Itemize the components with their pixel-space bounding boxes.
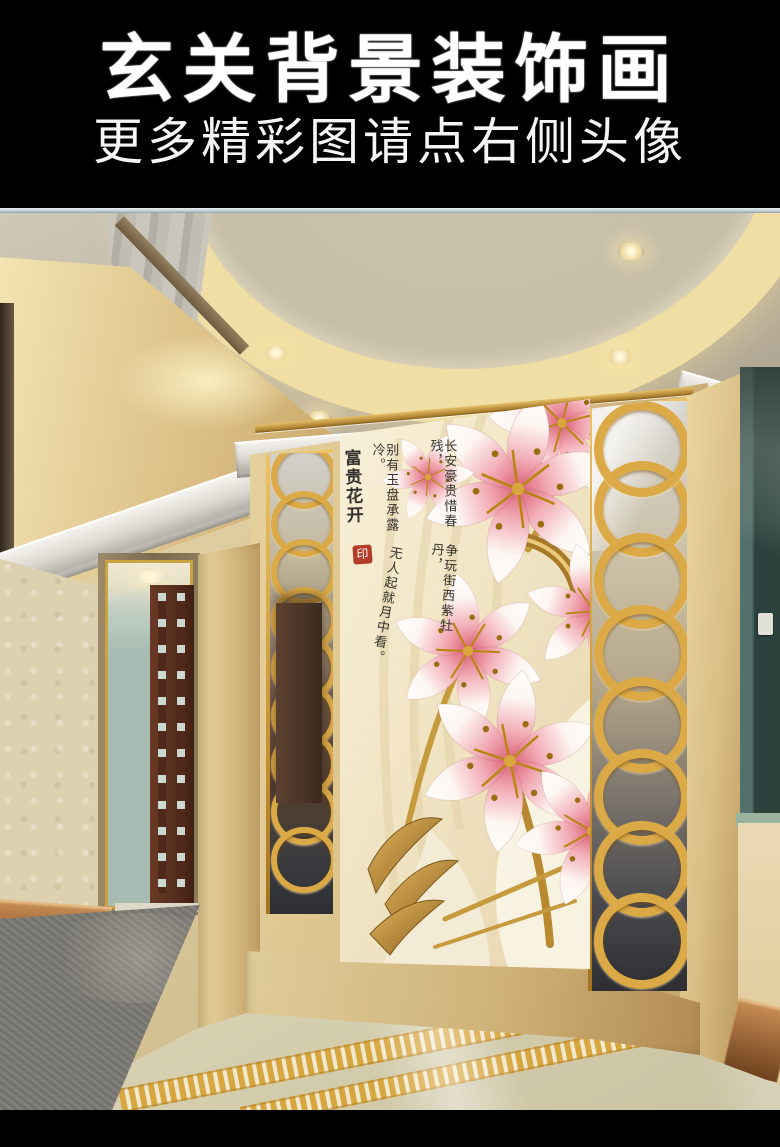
gold-ring: [594, 401, 690, 497]
left-edge-frame: [0, 303, 14, 575]
calligraphy-title: 富贵花开: [341, 449, 362, 536]
room-ceiling-light: [130, 571, 170, 583]
marble-pillar-right: [680, 363, 742, 1063]
inner-room: [105, 560, 193, 909]
circle-lattice-panel-right: [588, 397, 695, 999]
poem-column: 别有玉盘承露冷。: [370, 443, 397, 555]
ceiling-spotlight: [263, 345, 289, 361]
ceiling-spotlight: [617, 243, 645, 260]
mirror-backing: [270, 453, 337, 918]
door-glass-panes: [177, 593, 185, 893]
door-glass-panes: [158, 593, 166, 893]
poem-column: 长安豪贵惜春残，: [428, 439, 455, 551]
banner-title: 玄关背景装饰画: [0, 10, 780, 117]
doorway-mirror-frame: [98, 553, 200, 915]
light-switch: [758, 613, 773, 635]
entryway-scene: 富贵花开 印 长安豪贵惜春残， 别有玉盘承露冷。 争玩街西紫牡丹， 无人起就月中…: [0, 213, 780, 1110]
bottom-black-bar: [0, 1110, 780, 1147]
wood-lattice-door: [150, 585, 194, 903]
banner-subtitle: 更多精彩图请点右侧头像: [0, 102, 780, 174]
mirror-backing: [592, 401, 691, 995]
ceiling-spotlight: [606, 348, 634, 365]
gold-ring: [271, 827, 337, 893]
door-reflection: [276, 603, 322, 803]
wallpaper-wall: [0, 559, 100, 921]
teal-glass-wall: [740, 367, 780, 827]
gold-ring: [594, 893, 690, 989]
circle-lattice-panel-left: [266, 449, 341, 922]
lily-artwork-panel: 富贵花开 印 长安豪贵惜春残， 别有玉盘承露冷。 争玩街西紫牡丹， 无人起就月中…: [340, 399, 590, 974]
top-banner: 玄关背景装饰画 更多精彩图请点右侧头像: [0, 0, 780, 208]
